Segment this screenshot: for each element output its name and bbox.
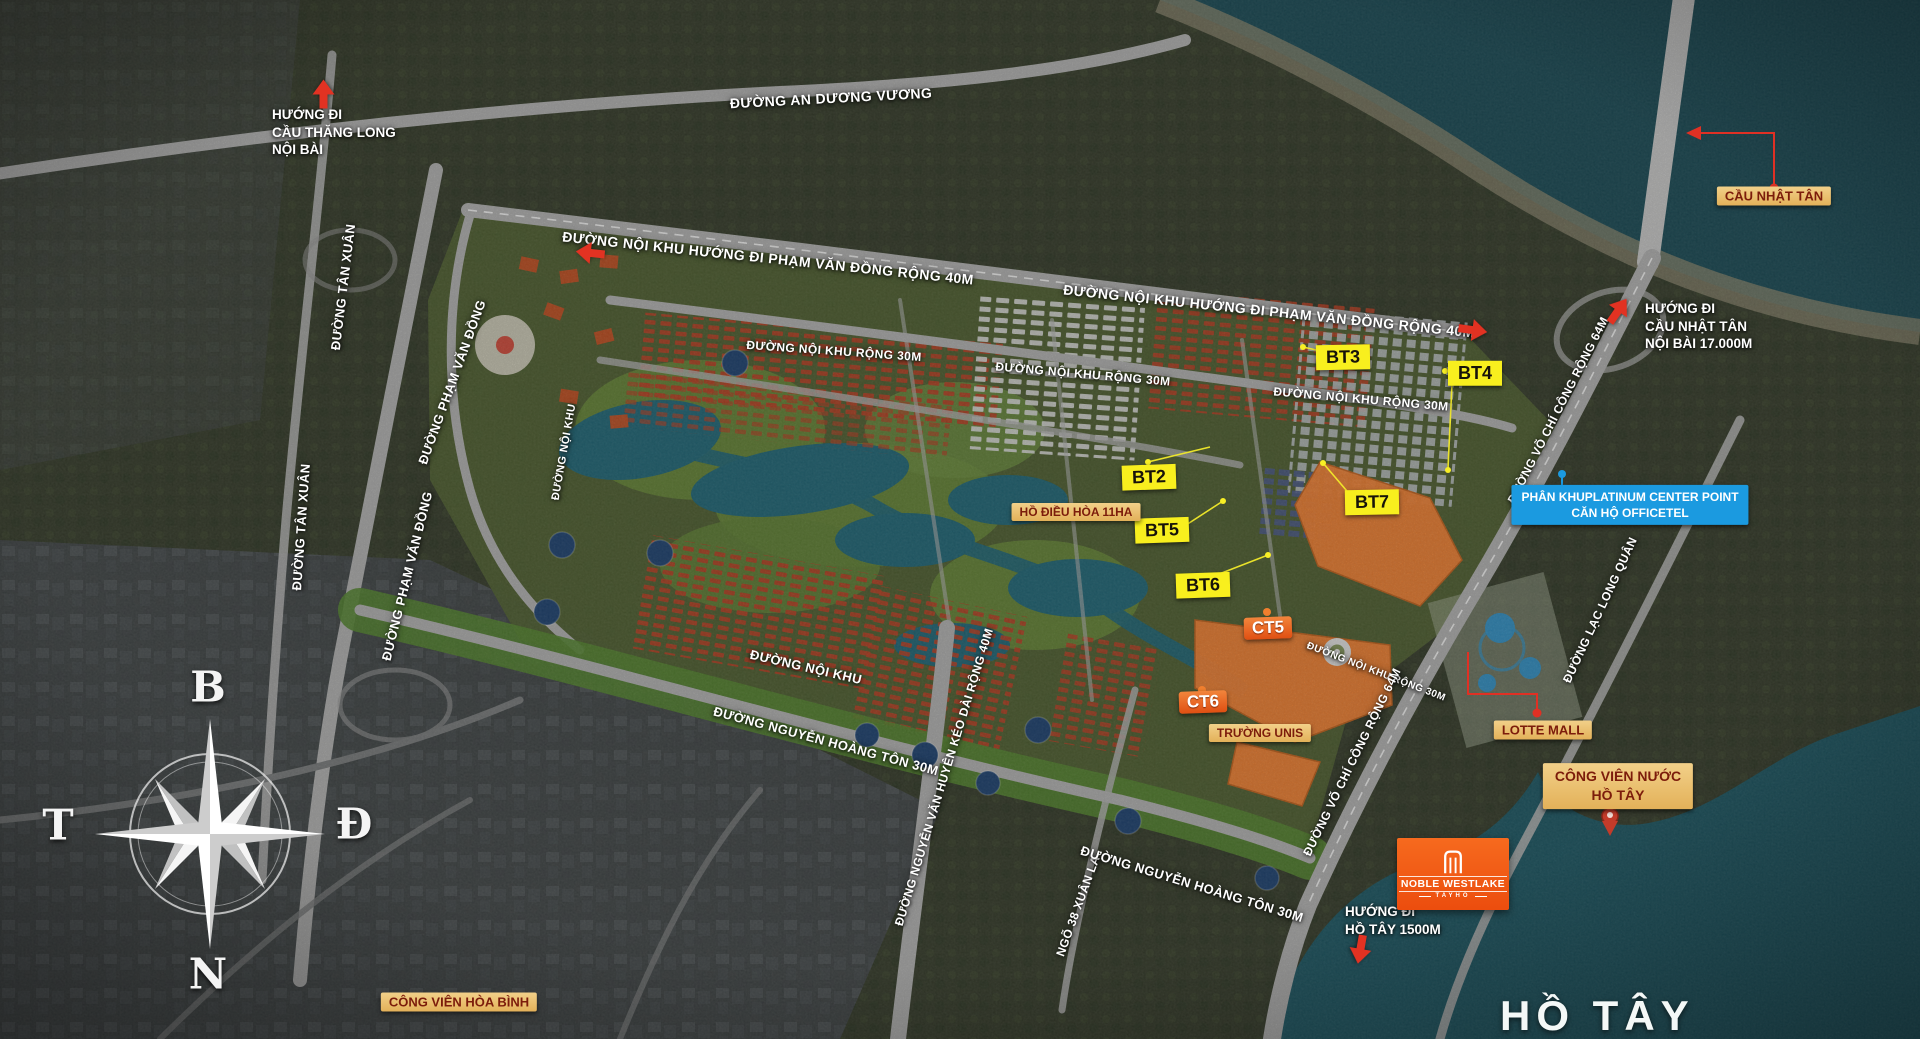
place-badge-platinum: PHÂN KHUPLATINUM CENTER POINT CĂN HỘ OFF…	[1511, 485, 1748, 525]
noble-westlake-logo: NOBLE WESTLAKE TAYHO	[1397, 838, 1509, 910]
place-badge-lotte-mall: LOTTE MALL	[1494, 721, 1592, 740]
red-arrow-thang-long	[310, 79, 343, 111]
place-badge-line1: CÔNG VIÊN NƯỚC	[1555, 767, 1681, 786]
platinum-line2: CĂN HỘ OFFICETEL	[1521, 505, 1738, 521]
place-badge-cong-vien-hoa-binh: CÔNG VIÊN HÒA BÌNH	[381, 993, 537, 1012]
masterplan-map: ĐƯỜNG AN DƯƠNG VƯƠNG ĐƯỜNG NỘI KHU HƯỚNG…	[0, 0, 1920, 1039]
direction-thang-long: HƯỚNG ĐI CẦU THĂNG LONG NỘI BÀI	[272, 106, 396, 159]
water-park-pin	[1602, 808, 1618, 836]
place-badge-cong-vien-nuoc: CÔNG VIÊN NƯỚC HỒ TÂY	[1543, 763, 1693, 809]
zone-badge-bt5: BT5	[1135, 517, 1190, 543]
compass-south-label: N	[189, 950, 227, 999]
zone-badge-ct6: CT6	[1179, 690, 1228, 714]
compass-east-label: Đ	[336, 800, 373, 849]
logo-name: NOBLE WESTLAKE	[1399, 876, 1507, 892]
compass-north-label: B	[190, 663, 226, 712]
place-badge-cau-nhat-tan: CẦU NHẬT TÂN	[1717, 187, 1831, 206]
compass-rose: B Đ T N	[30, 662, 390, 1012]
place-badge-ho-dieu-hoa: HỒ ĐIỀU HÒA 11HA	[1012, 503, 1141, 521]
red-arrow-40m-east	[1454, 314, 1490, 351]
zone-badge-bt7: BT7	[1345, 489, 1399, 514]
red-arrow-40m-west	[573, 232, 608, 268]
place-badge-line2: HỒ TÂY	[1555, 786, 1681, 805]
logo-building-icon	[1439, 849, 1467, 875]
direction-nhat-tan: HƯỚNG ĐI CẦU NHẬT TÂN NỘI BÀI 17.000M	[1645, 300, 1752, 353]
logo-subtitle: TAYHO	[1419, 893, 1486, 899]
red-arrow-ho-tay	[1339, 930, 1377, 967]
compass-west-label: T	[42, 801, 73, 850]
zone-badge-bt6: BT6	[1176, 572, 1231, 598]
place-badge-truong-unis: TRƯỜNG UNIS	[1209, 724, 1311, 742]
zone-badge-ct5: CT5	[1244, 616, 1293, 640]
zone-badge-bt4: BT4	[1448, 361, 1502, 386]
logo-subtitle-text: TAYHO	[1435, 893, 1470, 899]
platinum-line1: PHÂN KHUPLATINUM CENTER POINT	[1521, 489, 1738, 505]
lake-name-ho-tay: HỒ TÂY	[1500, 992, 1695, 1039]
zone-badge-bt2: BT2	[1122, 464, 1177, 490]
zone-badge-bt3: BT3	[1316, 344, 1370, 369]
